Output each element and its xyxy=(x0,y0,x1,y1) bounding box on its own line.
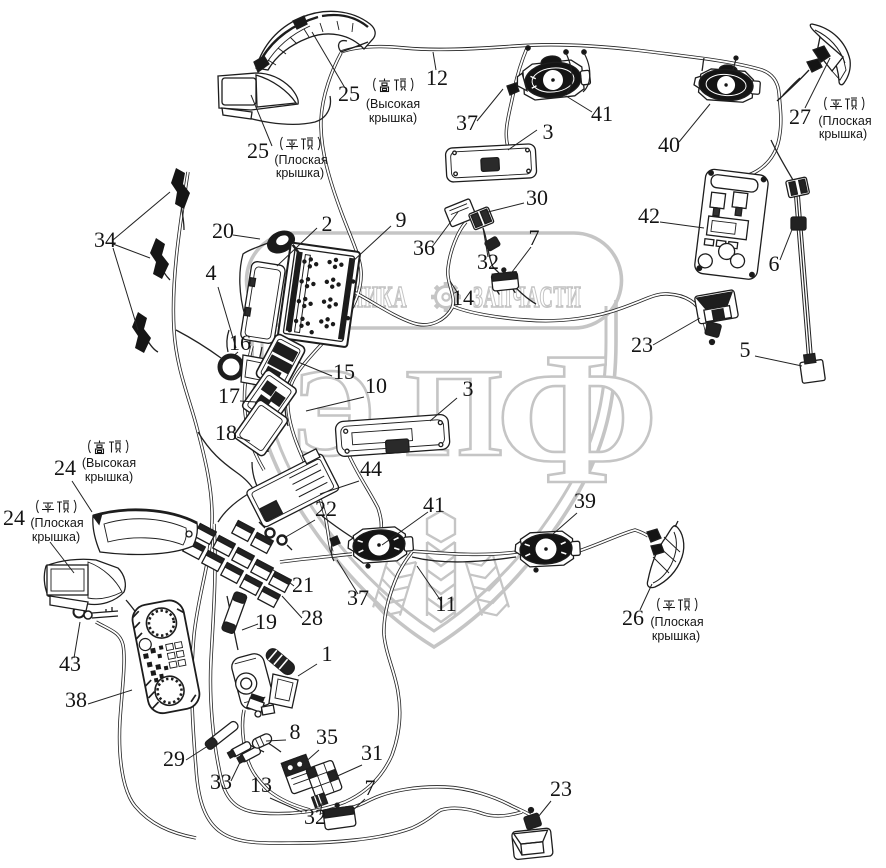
svg-text:27: 27 xyxy=(789,104,811,129)
svg-text:7: 7 xyxy=(365,775,376,800)
svg-text:П: П xyxy=(405,344,503,483)
svg-text:ЗАПЧАСТИ: ЗАПЧАСТИ xyxy=(473,279,581,314)
svg-text:11: 11 xyxy=(435,591,456,616)
svg-text:крышка): крышка) xyxy=(819,127,867,141)
svg-text:3: 3 xyxy=(543,119,554,144)
svg-text:крышка): крышка) xyxy=(652,629,700,643)
svg-text:21: 21 xyxy=(292,572,314,597)
svg-text:25: 25 xyxy=(338,81,360,106)
svg-text:7: 7 xyxy=(529,225,540,250)
svg-text:20: 20 xyxy=(212,218,234,243)
svg-text:37: 37 xyxy=(456,110,478,135)
svg-text:41: 41 xyxy=(591,101,613,126)
svg-text:12: 12 xyxy=(426,65,448,90)
svg-text:42: 42 xyxy=(638,203,660,228)
svg-text:(Плоская: (Плоская xyxy=(650,615,703,629)
svg-text:23: 23 xyxy=(631,332,653,357)
svg-text:крышка): крышка) xyxy=(369,111,417,125)
svg-text:крышка): крышка) xyxy=(85,470,133,484)
svg-text:37: 37 xyxy=(347,585,369,610)
svg-text:38: 38 xyxy=(65,687,87,712)
svg-text:10: 10 xyxy=(365,373,387,398)
svg-text:крышка): крышка) xyxy=(32,530,80,544)
svg-text:(Плоская: (Плоская xyxy=(818,114,871,128)
svg-text:29: 29 xyxy=(163,746,185,771)
svg-text:(Плоская: (Плоская xyxy=(30,516,83,530)
svg-text:28: 28 xyxy=(301,605,323,630)
svg-text:32: 32 xyxy=(304,804,326,829)
svg-text:24: 24 xyxy=(3,505,25,530)
svg-text:26: 26 xyxy=(622,605,644,630)
svg-text:44: 44 xyxy=(360,456,382,481)
svg-text:15: 15 xyxy=(333,359,355,384)
svg-text:6: 6 xyxy=(769,251,780,276)
svg-text:39: 39 xyxy=(574,488,596,513)
svg-text:4: 4 xyxy=(206,260,217,285)
svg-text:23: 23 xyxy=(550,776,572,801)
svg-text:25: 25 xyxy=(247,138,269,163)
svg-text:31: 31 xyxy=(361,740,383,765)
svg-text:8: 8 xyxy=(290,719,301,744)
svg-text:33: 33 xyxy=(210,769,232,794)
svg-text:17: 17 xyxy=(218,383,240,408)
svg-text:19: 19 xyxy=(255,609,277,634)
svg-text:5: 5 xyxy=(740,337,751,362)
svg-text:30: 30 xyxy=(526,185,548,210)
svg-text:18: 18 xyxy=(215,420,237,445)
svg-text:22: 22 xyxy=(315,496,337,521)
svg-text:41: 41 xyxy=(423,492,445,517)
svg-text:14: 14 xyxy=(452,285,474,310)
svg-text:2: 2 xyxy=(322,211,333,236)
svg-text:24: 24 xyxy=(54,455,76,480)
svg-text:крышка): крышка) xyxy=(276,166,324,180)
svg-text:40: 40 xyxy=(658,132,680,157)
svg-text:43: 43 xyxy=(59,651,81,676)
svg-text:9: 9 xyxy=(396,207,407,232)
svg-text:36: 36 xyxy=(413,235,435,260)
svg-text:(Высокая: (Высокая xyxy=(366,97,420,111)
svg-text:32: 32 xyxy=(477,249,499,274)
svg-text:34: 34 xyxy=(94,227,116,252)
svg-text:1: 1 xyxy=(322,641,333,666)
svg-text:3: 3 xyxy=(463,376,474,401)
svg-text:35: 35 xyxy=(316,724,338,749)
svg-text:(Высокая: (Высокая xyxy=(82,456,136,470)
svg-text:16: 16 xyxy=(229,330,251,355)
svg-text:(Плоская: (Плоская xyxy=(274,153,327,167)
svg-text:13: 13 xyxy=(250,772,272,797)
